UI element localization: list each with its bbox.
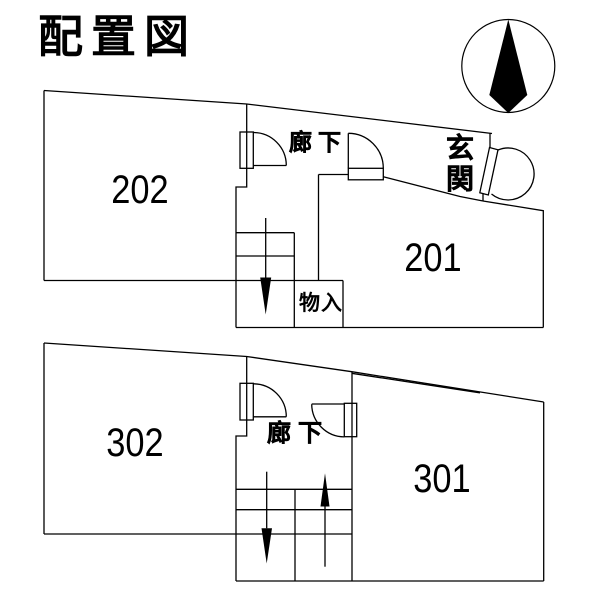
corridor-label-3f: 廊下 (267, 422, 329, 446)
wall-3f-top (44, 343, 544, 402)
room-label-201: 201 (390, 238, 476, 278)
stairs-2f (236, 218, 294, 328)
compass-icon (462, 20, 555, 114)
wall-3f-top-double (352, 373, 480, 393)
storage-label: 物入 (299, 293, 343, 314)
room-label-301: 301 (399, 459, 485, 499)
corridor-label-2f: 廊下 (289, 131, 347, 154)
room-label-302: 302 (92, 423, 178, 463)
door-icon-2f-entrance (480, 134, 534, 200)
door-icon-3f-corridor-left (240, 383, 286, 420)
door-icon-2f-corridor-left (240, 132, 286, 168)
wall-stair-left-3f (236, 420, 247, 581)
wall-stair-left (236, 168, 247, 327)
wall-2f-top (44, 91, 492, 134)
down-arrow-icon (260, 278, 271, 315)
wall-2f-right (483, 201, 543, 328)
stairs-3f (236, 472, 352, 581)
entrance-label: 玄関 (443, 133, 474, 195)
down-arrow-icon (262, 528, 273, 563)
page-title: 配置図 (38, 14, 197, 59)
door-icon-2f-corridor-right (348, 133, 383, 180)
north-arrow-icon (489, 20, 527, 114)
site-plan-page: 配置図 202 201 廊下 玄関 物入 302 301 廊下 (0, 0, 600, 600)
room-label-202: 202 (97, 170, 183, 210)
